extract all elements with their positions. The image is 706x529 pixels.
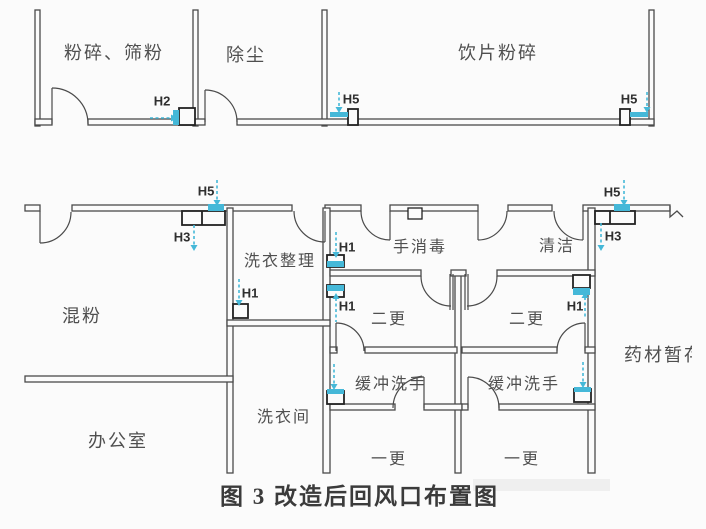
vent-box-h5-top-left: [348, 109, 358, 125]
room-label-crushing-sieving: 粉碎、筛粉: [64, 39, 164, 65]
door-arc: [467, 276, 497, 306]
room-label-powder-mixing: 混粉: [62, 302, 102, 328]
figure-caption: 图 3 改造后回风口布置图: [220, 477, 490, 511]
door-arc: [40, 212, 71, 243]
floor-plan: 粉碎、筛粉 除尘 饮片粉碎 混粉 洗衣整理 手消毒 清洁 二更 二更 缓冲洗手 …: [0, 0, 706, 529]
door-arc: [294, 211, 325, 242]
grille-h5-top-right: [630, 112, 648, 117]
grille-buffer-left: [327, 389, 344, 394]
vent-label-h5-top-right: H5: [621, 92, 638, 107]
vent-box-h5-top-right: [620, 109, 630, 125]
room-label-buffer-handwash-right: 缓冲洗手: [488, 370, 560, 394]
door-arc: [361, 211, 390, 240]
wall-break-mark: [670, 206, 683, 217]
door-arc: [52, 88, 88, 124]
grille-h1-hand-disinfection: [327, 261, 344, 267]
room-label-second-change-left: 二更: [371, 305, 407, 329]
room-label-first-change-left: 一更: [371, 445, 407, 469]
door-arc: [465, 274, 468, 310]
vent-label-h3-mid-right: H3: [605, 229, 622, 244]
grille-buffer-right: [574, 387, 591, 392]
door-arc: [205, 90, 237, 122]
grille-h1-second-change-right: [573, 288, 590, 295]
vent-box-mid-left: [182, 211, 225, 225]
door-arc: [557, 323, 585, 351]
vent-label-h5-top-left: H5: [343, 92, 360, 107]
vent-box-h2: [179, 108, 195, 125]
grille-h5-mid-right: [614, 204, 630, 211]
vent-label-h1-second-change-left: H1: [339, 299, 356, 314]
vent-label-h5-mid-right: H5: [604, 185, 621, 200]
door-arc: [421, 276, 451, 306]
vent-box-second-change-right: [573, 275, 590, 288]
room-label-decoction-piece-crushing: 饮片粉碎: [458, 39, 538, 65]
vent-label-h2: H2: [154, 94, 171, 109]
door-arc: [336, 323, 364, 351]
room-label-first-change-right: 一更: [504, 445, 540, 469]
vent-label-h1-second-change-right: H1: [567, 299, 584, 314]
room-label-herb-storage: 药材暂存: [624, 341, 692, 365]
vent-label-h3-mid-left: H3: [174, 230, 191, 245]
room-label-laundry-room: 洗衣间: [257, 403, 311, 427]
room-label-office: 办公室: [88, 427, 148, 453]
door-arc: [450, 274, 453, 310]
vent-box-hand-disinfection-top: [408, 208, 422, 219]
vent-box-mid-right: [595, 211, 635, 224]
room-label-hand-disinfection: 手消毒: [393, 233, 447, 257]
room-label-cleaning: 清洁: [539, 232, 575, 256]
vent-label-h1-laundry-sorting: H1: [242, 286, 259, 301]
grille-h1-second-change-left: [327, 285, 344, 291]
vent-box-laundry-sorting: [233, 304, 248, 318]
room-label-second-change-right: 二更: [509, 305, 545, 329]
room-label-laundry-sorting: 洗衣整理: [244, 247, 316, 271]
room-label-buffer-handwash-left: 缓冲洗手: [355, 370, 427, 394]
vent-label-h1-hand-disinfection: H1: [339, 240, 356, 255]
door-arc: [478, 211, 507, 240]
vent-label-h5-mid-left: H5: [198, 184, 215, 199]
grille-h5-mid-left: [208, 204, 224, 211]
room-label-dust-removal: 除尘: [226, 41, 266, 67]
